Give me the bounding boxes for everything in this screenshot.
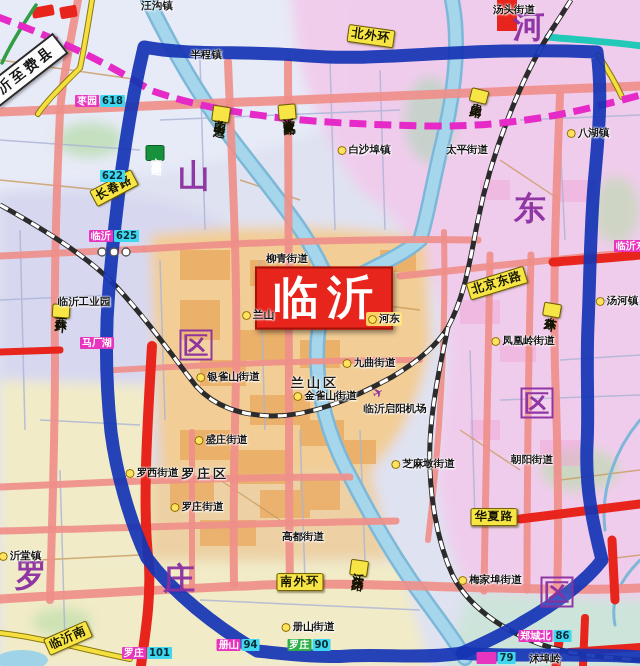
town-label: 罗庄区 (181, 465, 229, 483)
marker-name: 册山 (217, 639, 241, 651)
town-dot-icon (293, 392, 302, 401)
interchange-marker: 622 (99, 170, 125, 182)
town-label: 八湖镇 (567, 126, 610, 140)
town-label-text: 柳青街道 (266, 252, 308, 264)
interchange-marker: 79 (477, 652, 516, 664)
town-label-text: 八湖镇 (578, 126, 610, 138)
town-label-text: 册山街道 (293, 620, 335, 632)
town-label-text: 沂堂镇 (10, 549, 42, 561)
town-label-text: 沭埠岭 (529, 652, 561, 664)
town-dot-icon (196, 373, 205, 382)
town-label: 沭埠岭 (529, 652, 561, 666)
town-label: 银雀山街道 (196, 370, 260, 384)
marker-name (477, 652, 497, 664)
road-name-sign: 南外环 (277, 573, 324, 591)
town-label: 高都街道 (282, 530, 324, 544)
marker-name: 郑城北 (519, 630, 553, 642)
marker-name: 马厂湖 (80, 337, 114, 349)
road-name-sign: 沃尔沃路 (349, 559, 369, 577)
town-dot-icon (195, 436, 204, 445)
town-dot-icon (0, 552, 8, 561)
town-label: 临沂启阳机场 (364, 402, 427, 416)
town-dot-icon (338, 146, 347, 155)
town-label: 盛庄街道 (195, 433, 248, 447)
marker-number: 79 (498, 652, 516, 664)
interchange-marker: 郑城北86 (519, 630, 572, 642)
town-dot-icon (596, 297, 605, 306)
district-char: 庄 (163, 563, 195, 595)
town-label-text: 白沙埠镇 (349, 143, 391, 155)
road-name-sign: 蒙山大道 (211, 105, 231, 123)
town-dot-icon (126, 469, 135, 478)
town-label-text: 盛庄街道 (206, 433, 248, 445)
town-label: 九曲街道 (343, 356, 396, 370)
town-label: 梅家埠街道 (458, 573, 522, 587)
town-label-text: 汤头街道 (493, 3, 535, 15)
town-label-text: 芝麻墩街道 (402, 457, 455, 469)
town-label: 兰山 (242, 308, 274, 322)
expressway-sign: 京沪高速 (146, 145, 165, 161)
town-label-text: 汤河镇 (607, 294, 639, 306)
town-label-text: 汪沟镇 (141, 0, 173, 11)
town-dot-icon (567, 129, 576, 138)
interchange-marker: 罗庄101 (122, 647, 172, 659)
town-label: 河东 (366, 312, 402, 326)
road-name-sign: 东外环 (542, 302, 562, 319)
town-label: 罗庄街道 (171, 500, 224, 514)
marker-number: 618 (100, 95, 125, 107)
town-label: 临沂工业园 (58, 295, 111, 309)
road-name-sign: 临沂南 (43, 620, 93, 655)
town-label-text: 朝阳街道 (511, 453, 553, 465)
interchange-marker: 临沂625 (89, 230, 139, 242)
marker-number: 90 (313, 639, 331, 651)
town-dot-icon (171, 503, 180, 512)
town-label-text: 兰山区 (291, 375, 339, 390)
marker-name: 罗庄 (288, 639, 312, 651)
interchange-marker: 马厂湖 (80, 337, 114, 349)
interchange-marker: 罗庄90 (288, 639, 331, 651)
town-label: 朝阳街道 (511, 453, 553, 467)
town-label: 半程镇 (190, 48, 222, 62)
district-char: 区 (541, 577, 574, 608)
town-dot-icon (282, 623, 291, 632)
town-label-text: 临沂启阳机场 (364, 402, 427, 414)
district-char: 山 (178, 160, 210, 192)
town-dot-icon (343, 359, 352, 368)
label-layer: 临沂 沂至费县 京沪高速 ✈ 山区河东区罗庄区北外环长春路蒙山大道沂蒙北路皇山路… (0, 0, 640, 666)
marker-number: 625 (114, 230, 139, 242)
town-label-text: 罗西街道 (137, 466, 179, 478)
route-banner: 沂至费县 (0, 33, 69, 108)
road-name-sign: 皇山路 (469, 87, 490, 105)
town-label: 汤河镇 (596, 294, 639, 308)
interchange-marker: 枣园618 (75, 95, 125, 107)
town-label: 金雀山街道 (293, 389, 357, 403)
marker-name: 罗庄 (122, 647, 146, 659)
marker-name: 枣园 (75, 95, 99, 107)
town-label: 罗西街道 (126, 466, 179, 480)
town-label-text: 凤凰岭街道 (502, 334, 555, 346)
town-label: 汤头街道 (493, 3, 535, 17)
interchange-marker: 册山94 (217, 639, 260, 651)
district-char: 区 (521, 388, 554, 419)
town-label: 沂堂镇 (0, 549, 41, 563)
town-dot-icon (242, 311, 251, 320)
town-label-text: 兰山 (253, 308, 274, 320)
interchange-marker: 临沂东 (614, 240, 640, 252)
town-label: 白沙埠镇 (338, 143, 391, 157)
airport-icon: ✈ (370, 384, 387, 402)
marker-name: 临沂东 (614, 240, 640, 252)
district-char: 东 (514, 192, 546, 224)
town-label: 柳青街道 (266, 252, 308, 266)
town-label-text: 半程镇 (190, 48, 222, 60)
town-label-text: 银雀山街道 (207, 370, 260, 382)
town-label-text: 罗庄街道 (182, 500, 224, 512)
town-dot-icon (491, 337, 500, 346)
marker-number: 622 (100, 170, 125, 182)
road-name-sign: 北京东路 (466, 266, 529, 301)
town-label: 汪沟镇 (141, 0, 173, 13)
town-label-text: 太平街道 (446, 143, 488, 155)
town-dot-icon (458, 576, 467, 585)
town-label-text: 河东 (379, 312, 400, 324)
marker-number: 86 (554, 630, 572, 642)
town-dot-icon (368, 315, 377, 324)
district-char: 罗 (15, 559, 47, 591)
road-name-sign: 华夏路 (471, 508, 518, 526)
marker-number: 101 (147, 647, 172, 659)
town-label: 册山街道 (282, 620, 335, 634)
town-dot-icon (391, 460, 400, 469)
town-label-text: 九曲街道 (354, 356, 396, 368)
district-char: 区 (180, 330, 213, 361)
marker-name: 临沂 (89, 230, 113, 242)
town-label-text: 梅家埠街道 (469, 573, 522, 585)
town-label: 太平街道 (446, 143, 488, 157)
road-name-sign: 沂蒙北路 (277, 103, 296, 120)
town-label-text: 罗庄区 (181, 466, 229, 481)
marker-number: 94 (242, 639, 260, 651)
town-label: 凤凰岭街道 (491, 334, 555, 348)
road-name-sign: 北外环 (346, 24, 395, 48)
town-label: 芝麻墩街道 (391, 457, 455, 471)
town-label-text: 金雀山街道 (304, 389, 357, 401)
town-label-text: 高都街道 (282, 530, 324, 542)
town-label-text: 临沂工业园 (58, 295, 111, 307)
map-canvas[interactable]: 临沂 沂至费县 京沪高速 ✈ 山区河东区罗庄区北外环长春路蒙山大道沂蒙北路皇山路… (0, 0, 640, 666)
